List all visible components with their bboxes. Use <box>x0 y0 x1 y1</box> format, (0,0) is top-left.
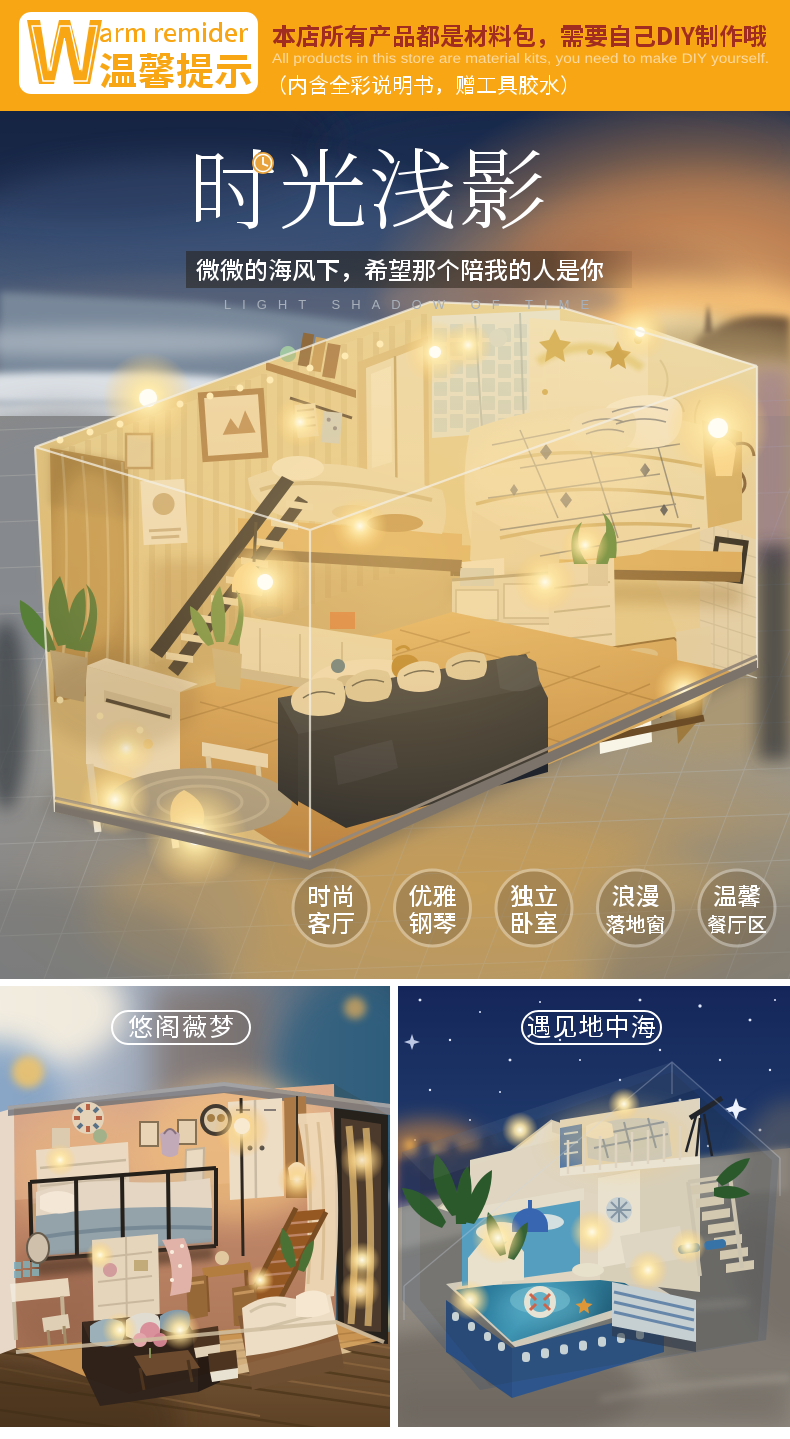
svg-text:All products in this store are: All products in this store are material … <box>272 51 769 67</box>
svg-text:LIGHT SHADOW OF TIME: LIGHT SHADOW OF TIME <box>224 297 600 312</box>
